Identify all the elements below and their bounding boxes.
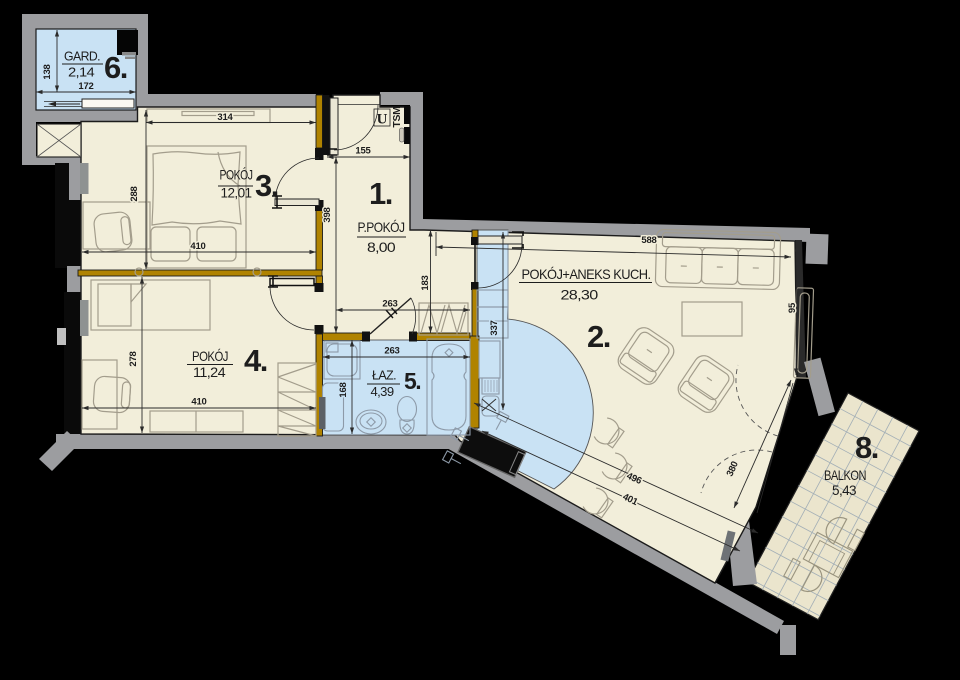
svg-text:3.: 3. [255,168,278,203]
svg-text:155: 155 [355,146,371,157]
svg-text:POKÓJ: POKÓJ [192,348,228,364]
svg-text:28,30: 28,30 [561,287,599,303]
svg-text:POKÓJ+ANEKS KUCH.: POKÓJ+ANEKS KUCH. [522,266,651,282]
svg-text:288: 288 [129,186,140,201]
svg-text:183: 183 [420,275,431,290]
svg-text:4.: 4. [244,343,267,378]
svg-text:5.: 5. [404,368,420,394]
svg-text:314: 314 [217,112,233,123]
svg-text:588: 588 [641,235,656,246]
svg-text:ŁAZ.: ŁAZ. [372,368,396,383]
svg-text:263: 263 [382,299,397,310]
svg-text:410: 410 [190,241,205,252]
svg-text:398: 398 [322,207,333,222]
svg-text:GARD.: GARD. [64,49,100,64]
svg-text:POKÓJ: POKÓJ [220,167,253,183]
svg-text:TSM: TSM [391,106,403,128]
svg-text:410: 410 [191,397,206,408]
svg-text:BALKON: BALKON [824,467,866,483]
svg-text:278: 278 [128,351,139,366]
svg-text:2.: 2. [587,319,610,354]
svg-text:95: 95 [787,302,798,313]
svg-text:12,01: 12,01 [221,185,253,201]
svg-text:8,00: 8,00 [367,239,396,255]
svg-text:P.POKÓJ: P.POKÓJ [358,219,405,235]
svg-text:263: 263 [384,346,399,357]
svg-text:5,43: 5,43 [832,482,857,498]
svg-text:337: 337 [489,320,500,335]
svg-text:11,24: 11,24 [193,364,226,380]
svg-text:138: 138 [42,64,53,79]
svg-text:2,14: 2,14 [68,65,94,80]
svg-text:172: 172 [78,81,93,92]
svg-text:1.: 1. [369,176,392,211]
svg-text:6.: 6. [104,50,127,85]
svg-text:8.: 8. [855,430,878,465]
svg-text:168: 168 [338,382,349,397]
svg-text:4,39: 4,39 [371,384,394,399]
svg-text:U: U [377,112,388,128]
